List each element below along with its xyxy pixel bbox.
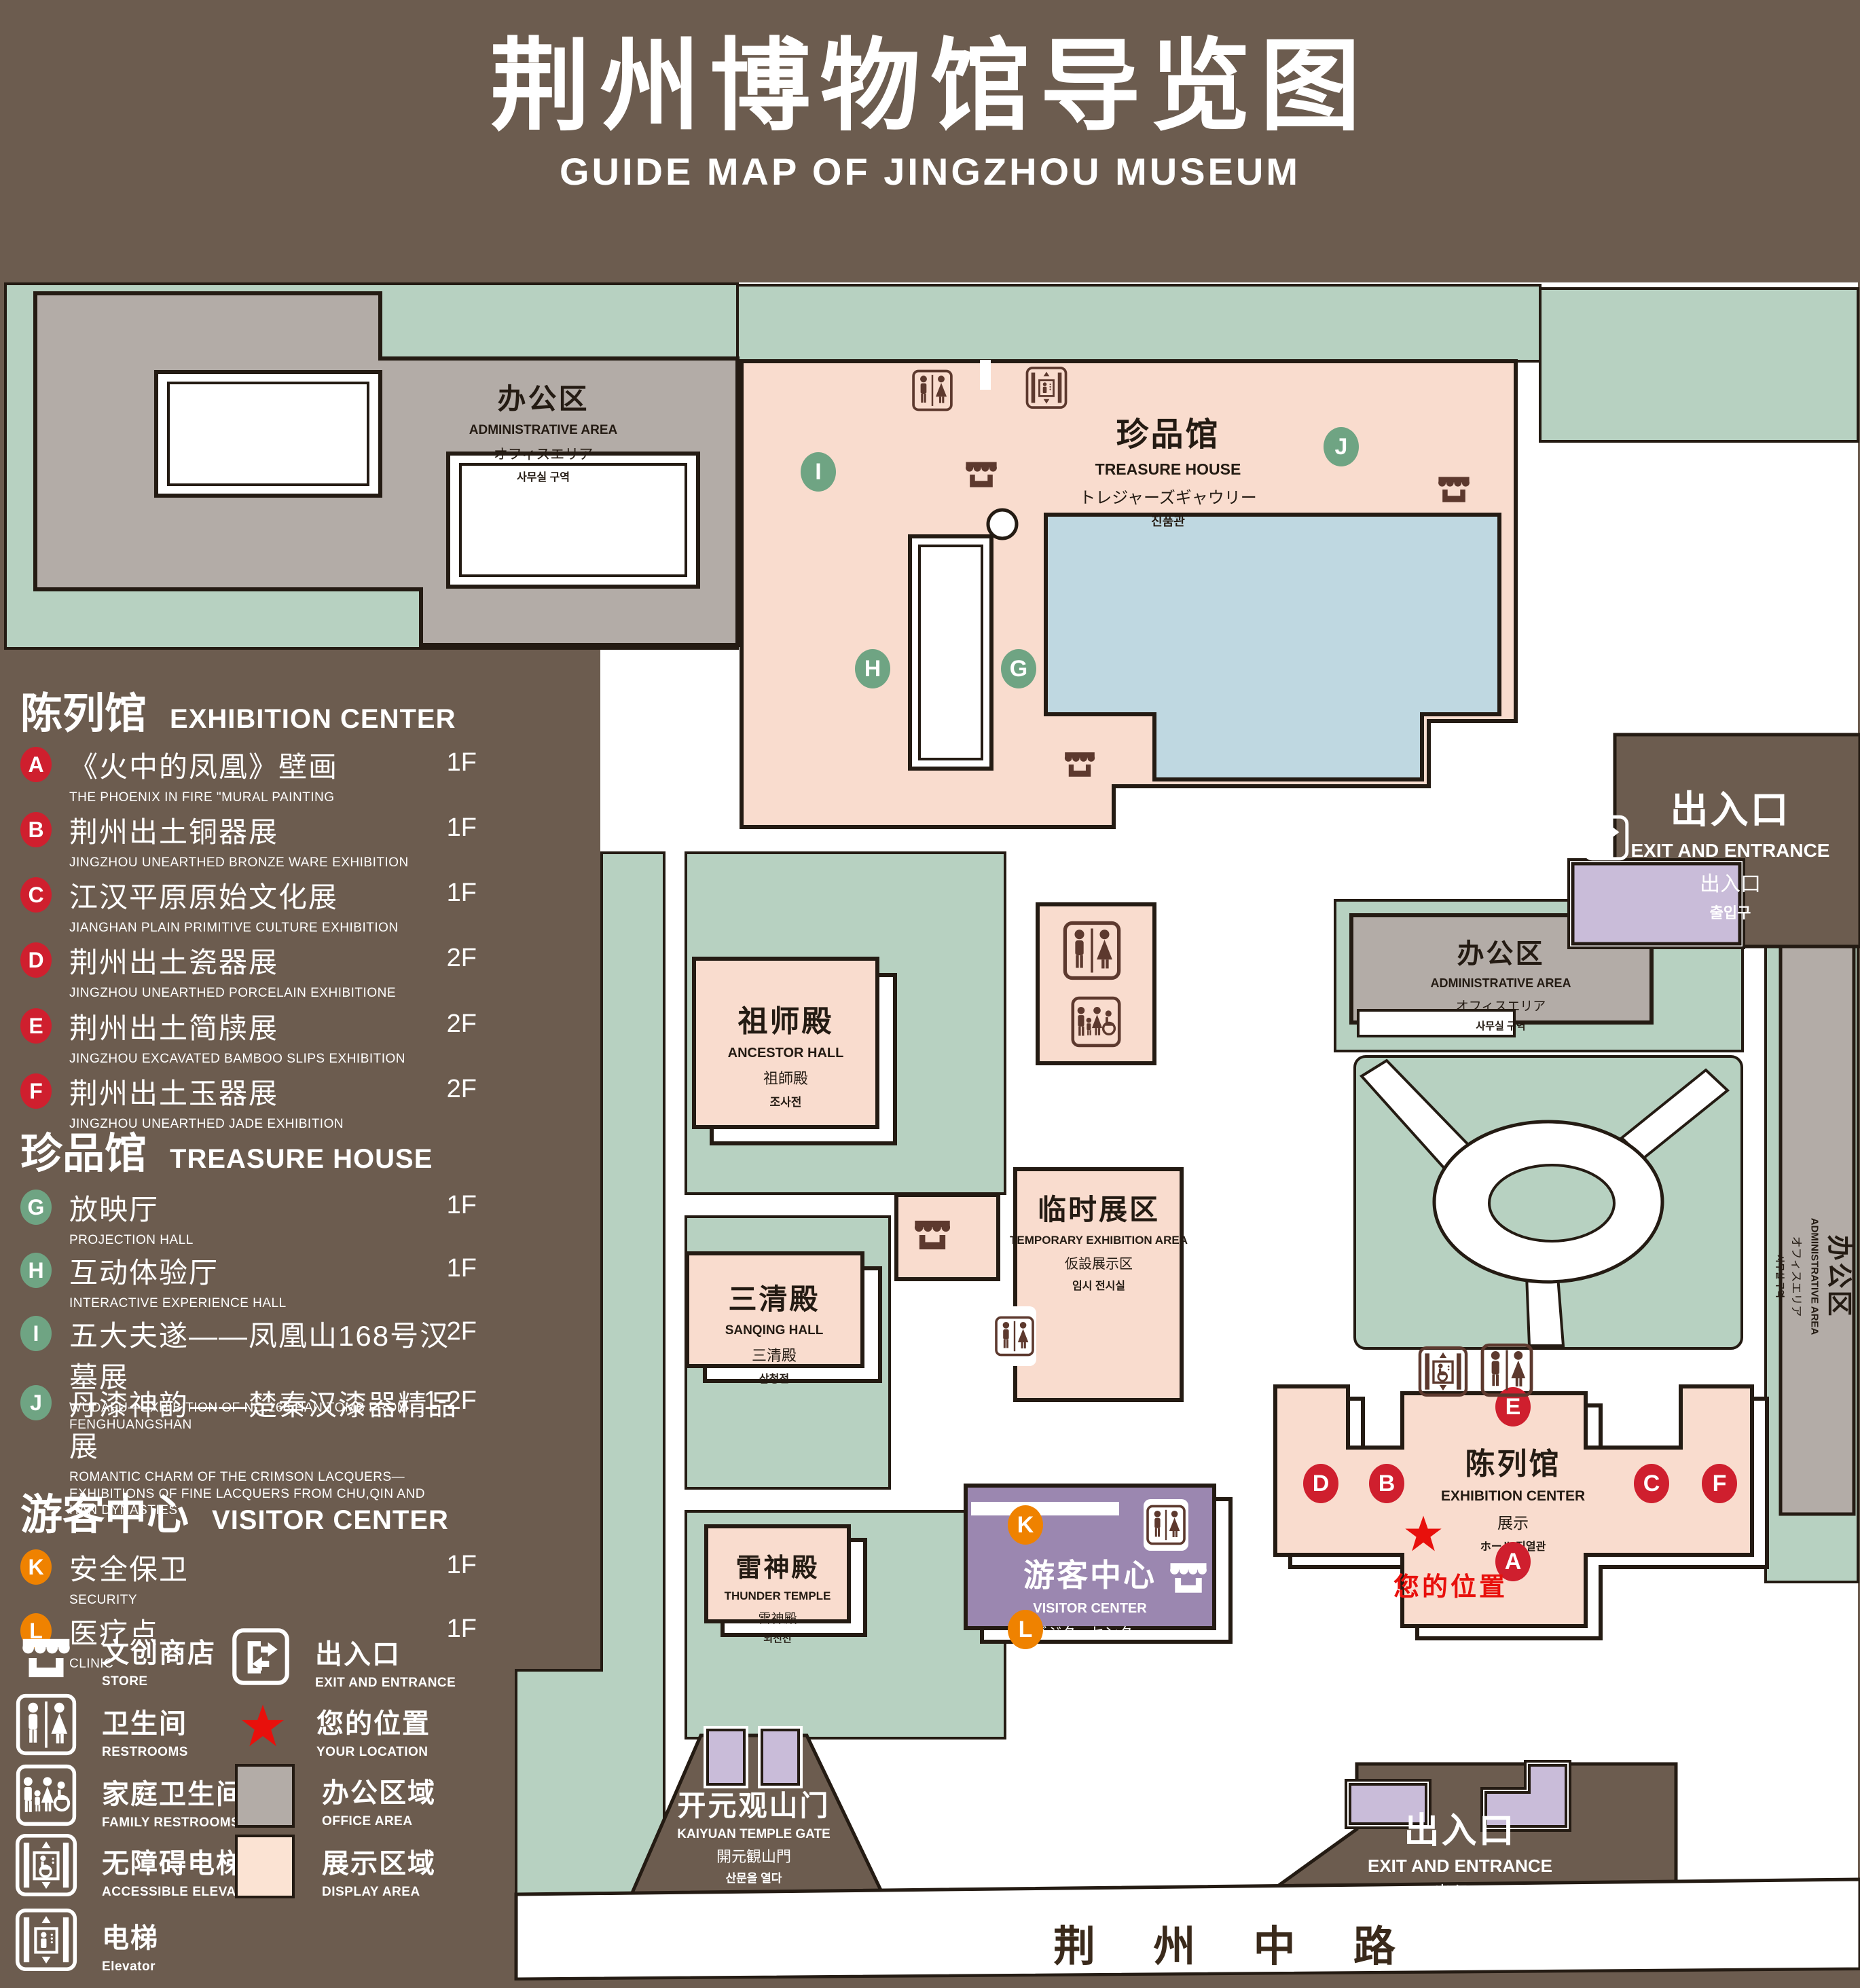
thunder-temple-label: 雷神殿 THUNDER TEMPLE 雷神殿 뇌신전 <box>725 1547 831 1645</box>
your-location-star-icon <box>1403 1514 1444 1553</box>
guide-map-page: 荆州博物馆导览图 GUIDE MAP OF JINGZHOU MUSEUM <box>0 0 1860 1988</box>
elevator-icon <box>15 1908 77 1972</box>
family-restroom-icon <box>1070 994 1122 1050</box>
family-restroom-icon <box>15 1764 77 1826</box>
exhibition-center-label: 陈列馆 EXHIBITION CENTER 展示 ホール 진열관 <box>1441 1439 1585 1553</box>
your-location-star-icon <box>239 1703 287 1749</box>
restroom-icon <box>994 1309 1035 1363</box>
legend-symbol-restrooms: 卫生间RESTROOMS <box>15 1692 188 1760</box>
restroom-icon <box>1146 1502 1186 1548</box>
admin-topleft-label: 办公区 ADMINISTRATIVE AREA オフィスエリア 사무실 구역 <box>469 376 618 484</box>
visitor-center-label: 游客中心 VISITOR CENTER ビジターセンター 관광객 센터 <box>1023 1551 1156 1663</box>
store-icon <box>1061 745 1099 784</box>
exit-icon <box>1582 813 1630 862</box>
road-name: 荆 州 中 路 <box>1053 1912 1419 1973</box>
store-icon <box>910 1213 955 1257</box>
store-icon <box>1165 1555 1211 1601</box>
marker-d: D <box>1303 1464 1338 1503</box>
marker-b: B <box>1369 1464 1404 1503</box>
admin-right-label: 办公区 ADMINISTRATIVE AREA オフィスエリア 사무실 구역 <box>1774 1218 1860 1336</box>
exit-icon <box>231 1627 291 1687</box>
legend-item-e: E 荆州出土简牍展JINGZHOU EXCAVATED BAMBOO SLIPS… <box>20 1006 477 1068</box>
ancestor-hall-label: 祖师殿 ANCESTOR HALL 祖師殿 조사전 <box>728 997 844 1109</box>
marker-g: G <box>1001 649 1036 688</box>
bottom-exit-label: 出入口 EXIT AND ENTRANCE 出入口 출입구 <box>1368 1802 1552 1926</box>
store-icon <box>15 1628 77 1688</box>
legend-symbol-office-area: 办公区域OFFICE AREA <box>235 1764 436 1829</box>
store-icon <box>962 455 1001 494</box>
legend-symbol-your-location: 您的位置YOUR LOCATION <box>239 1697 431 1760</box>
legend-item-k: K 安全保卫SECURITY 1F <box>20 1547 477 1609</box>
marker-i: I <box>801 452 836 492</box>
legend-item-b: B 荆州出土铜器展JINGZHOU UNEARTHED BRONZE WARE … <box>20 809 477 872</box>
temporary-exhibition-label: 临时展区 TEMPORARY EXHIBITION AREA 仮設展示区 임시 … <box>1010 1187 1188 1293</box>
legend-section-exhibition-center: 陈列馆 EXHIBITION CENTER <box>20 679 456 740</box>
restroom-icon <box>15 1692 77 1757</box>
marker-f: F <box>1702 1464 1737 1503</box>
elevator-icon <box>1025 367 1068 409</box>
right-exit-label: 出入口 EXIT AND ENTRANCE 出入口 출입구 <box>1631 779 1830 923</box>
marker-j: J <box>1324 427 1359 466</box>
marker-c: C <box>1634 1464 1669 1503</box>
marker-h: H <box>855 649 890 688</box>
store-icon <box>1434 470 1474 509</box>
legend-section-treasure-house: 珍品馆 TREASURE HOUSE <box>20 1119 433 1180</box>
accessible-elevator-icon <box>1418 1346 1468 1397</box>
legend-symbol-exit: 出入口EXIT AND ENTRANCE <box>231 1627 456 1691</box>
legend-item-a: A 《火中的凤凰》壁画THE PHOENIX IN FIRE "MURAL PA… <box>20 744 477 807</box>
treasure-house-label: 珍品馆 TREASURE HOUSE トレジャーズギャウリー 진품관 <box>1079 407 1257 530</box>
restroom-icon <box>911 369 953 411</box>
legend-item-d: D 荆州出土瓷器展JINGZHOU UNEARTHED PORCELAIN EX… <box>20 940 477 1002</box>
office-area-swatch <box>235 1764 295 1828</box>
marker-l: L <box>1008 1610 1043 1649</box>
admin-mid-label: 办公区 ADMINISTRATIVE AREA オフィスエリア 사무실 구역 <box>1431 932 1571 1033</box>
legend-section-visitor-center: 游客中心 VISITOR CENTER <box>20 1480 449 1541</box>
legend-symbol-family-restrooms: 家庭卫生间FAMILY RESTROOMS <box>15 1764 244 1830</box>
legend-item-g: G 放映厅PROJECTION HALL 1F <box>20 1187 477 1249</box>
garden-island <box>1489 1165 1614 1241</box>
accessible-elevator-icon <box>15 1833 77 1897</box>
admin-building-right <box>1781 864 1854 1514</box>
marker-k: K <box>1008 1505 1043 1545</box>
legend-symbol-accessible-elevator: 无障碍电梯ACCESSIBLE ELEVATOR <box>15 1833 263 1900</box>
legend-symbol-display-area: 展示区域DISPLAY AREA <box>235 1835 436 1900</box>
sanqing-hall-label: 三清殿 SANQING HALL 三清殿 삼청전 <box>725 1276 824 1386</box>
gate-label: 开元观山门 KAIYUAN TEMPLE GATE 開元観山門 산문을 열다 <box>677 1783 831 1885</box>
legend-item-c: C 江汉平原原始文化展JIANGHAN PLAIN PRIMITIVE CULT… <box>20 875 477 937</box>
display-area-swatch <box>235 1835 295 1898</box>
legend-item-h: H 互动体验厅INTERACTIVE EXPERIENCE HALL 1F <box>20 1250 477 1312</box>
legend-symbol-elevator: 电梯Elevator <box>15 1908 159 1974</box>
your-location-text: 您的位置 <box>1393 1566 1508 1603</box>
restroom-icon <box>1062 918 1122 983</box>
restroom-icon <box>1478 1343 1536 1397</box>
legend-symbol-store: 文创商店STORE <box>15 1628 216 1689</box>
